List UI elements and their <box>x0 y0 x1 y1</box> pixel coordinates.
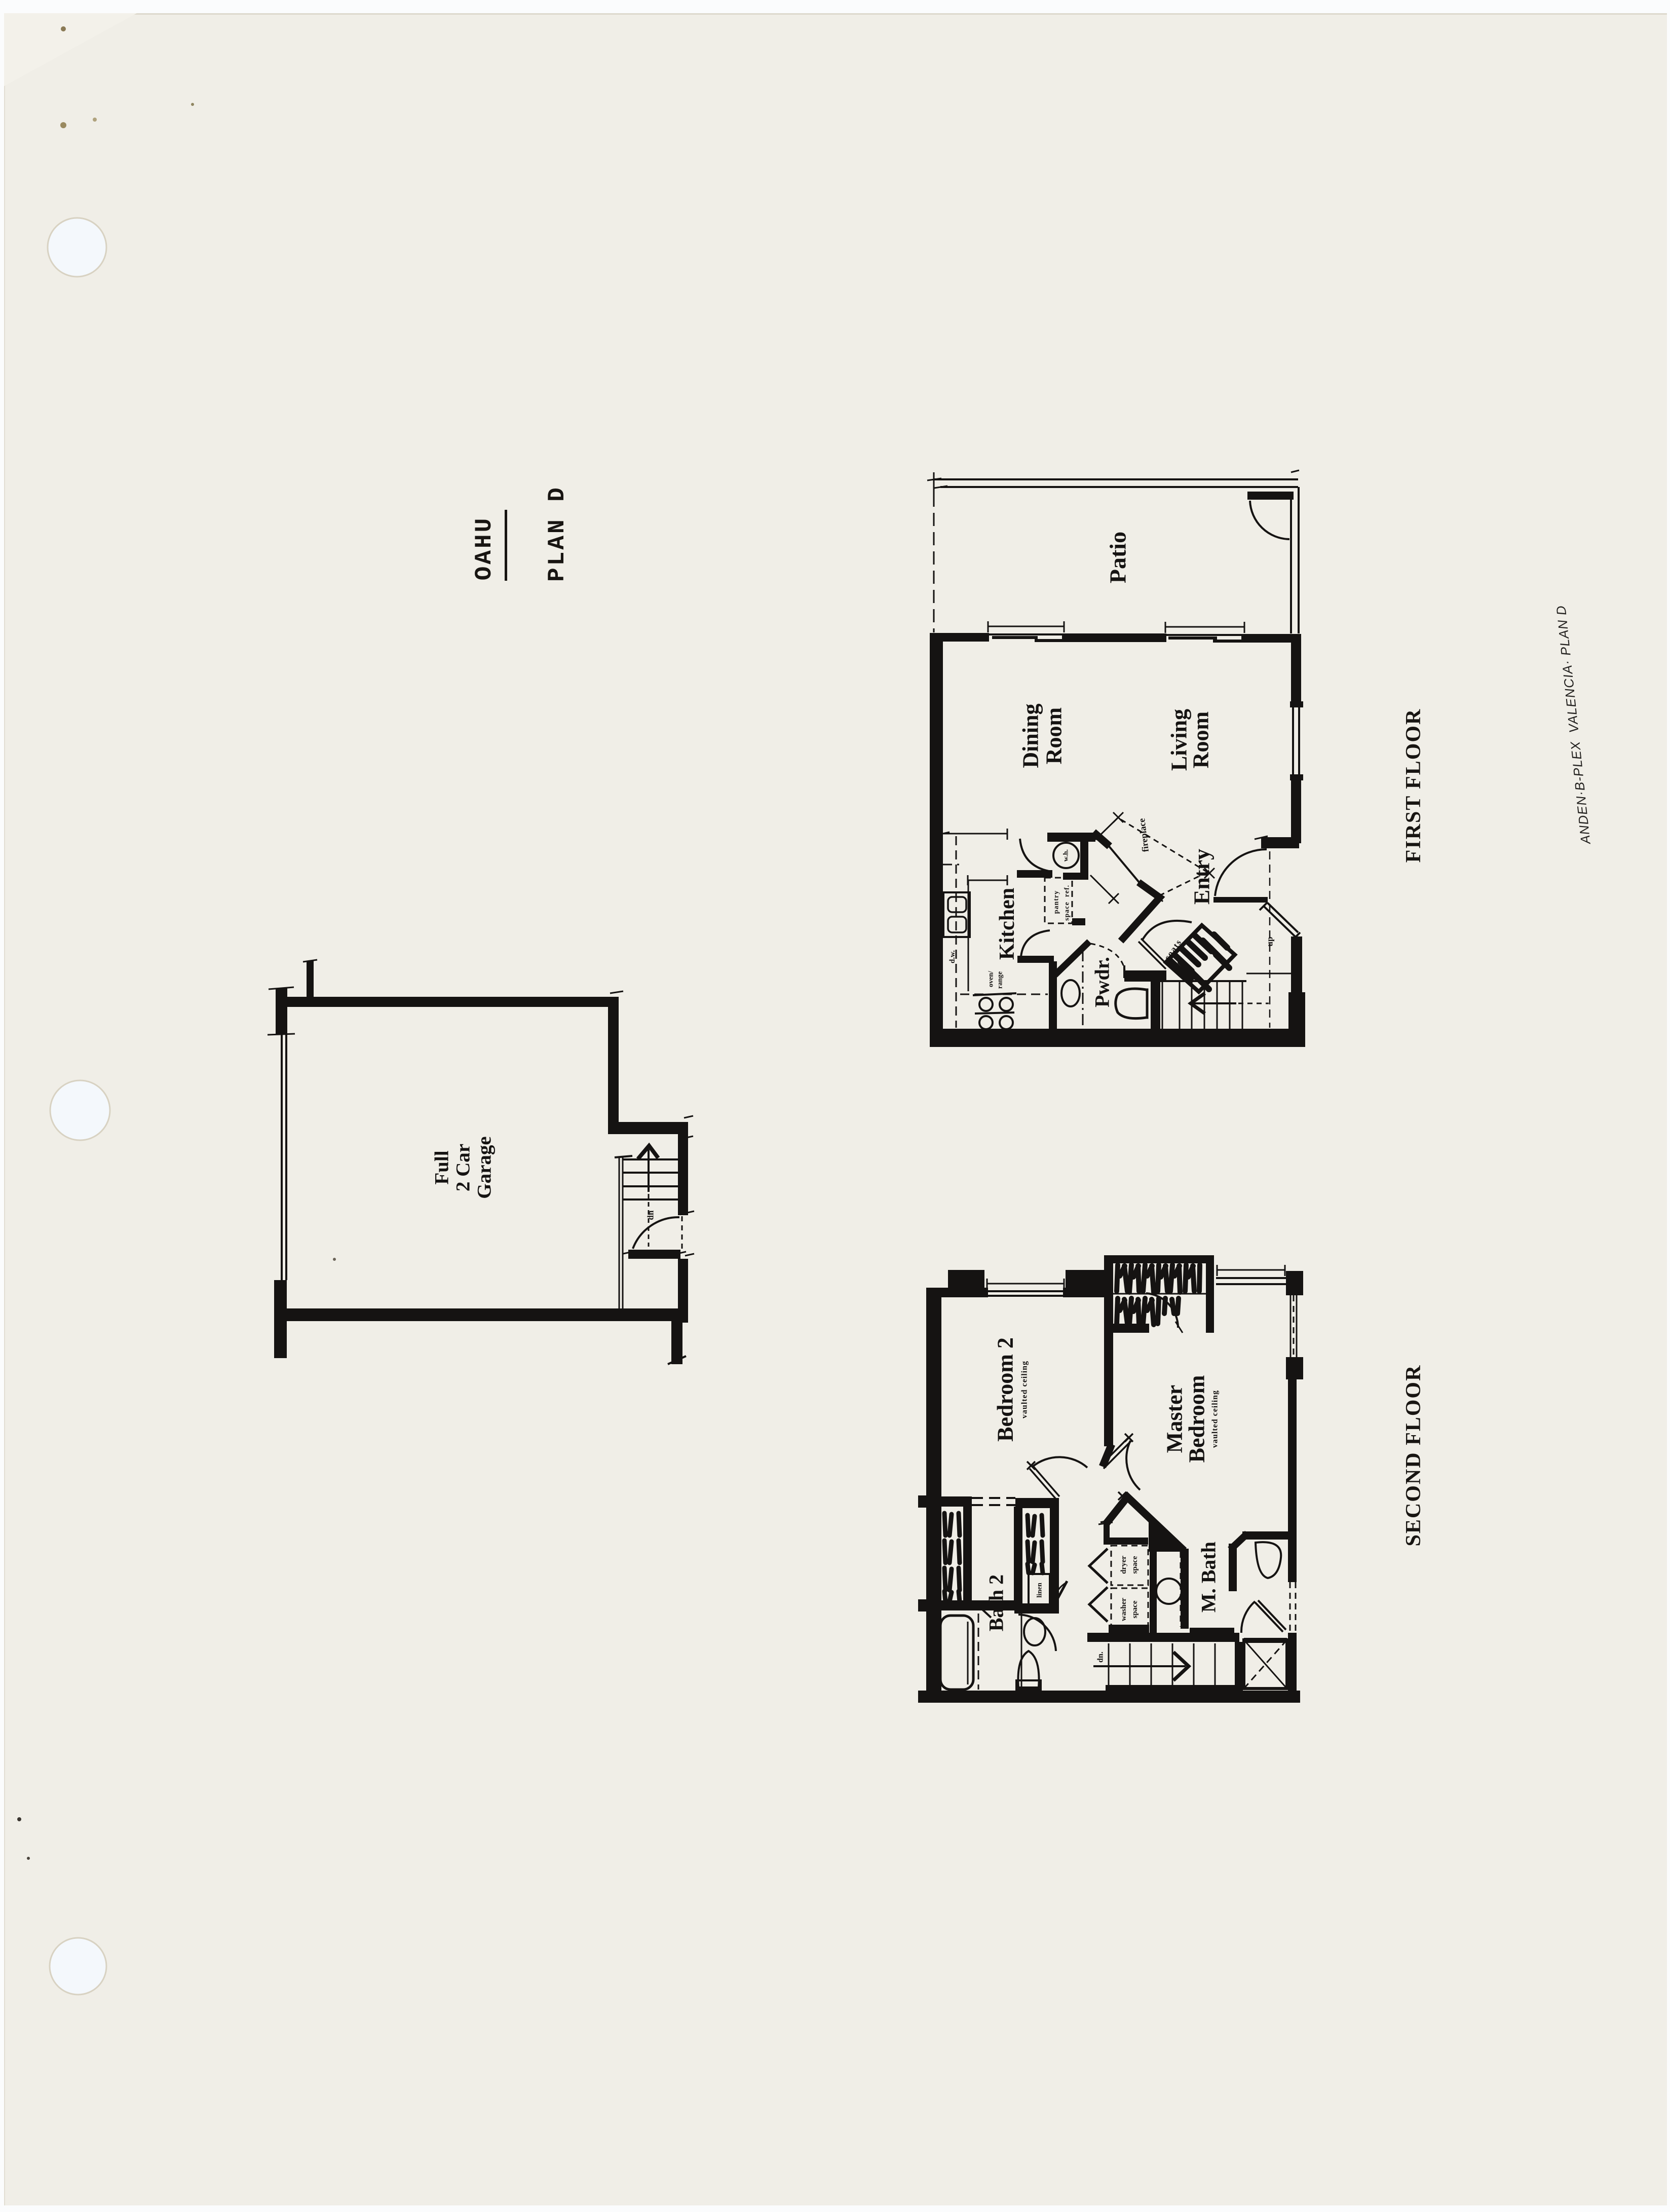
svg-text:Garage: Garage <box>474 1136 496 1198</box>
svg-text:space: space <box>1064 902 1071 921</box>
svg-text:Bedroom 2: Bedroom 2 <box>993 1337 1018 1442</box>
svg-text:PLAN D: PLAN D <box>544 485 571 582</box>
svg-text:oven/: oven/ <box>988 970 995 987</box>
svg-text:linen: linen <box>1036 1583 1044 1598</box>
svg-text:Full: Full <box>431 1150 453 1184</box>
svg-text:dn.: dn. <box>1096 1652 1105 1663</box>
svg-text:Room: Room <box>1042 707 1067 764</box>
svg-text:Pwdr.: Pwdr. <box>1091 957 1114 1007</box>
svg-text:2 Car: 2 Car <box>452 1144 474 1191</box>
svg-text:range: range <box>997 971 1004 989</box>
svg-text:OAHU: OAHU <box>471 516 498 580</box>
svg-text:space: space <box>1131 1600 1139 1618</box>
svg-text:M. Bath: M. Bath <box>1197 1542 1220 1613</box>
svg-text:vaulted ceiling: vaulted ceiling <box>1020 1361 1029 1418</box>
svg-text:dryer: dryer <box>1120 1556 1128 1574</box>
svg-text:Room: Room <box>1189 711 1213 768</box>
svg-text:Bedroom: Bedroom <box>1185 1375 1209 1463</box>
svg-text:d.w.: d.w. <box>948 950 957 963</box>
svg-text:vaulted ceiling: vaulted ceiling <box>1211 1390 1220 1448</box>
svg-text:pantry: pantry <box>1053 890 1060 914</box>
svg-text:Bath 2: Bath 2 <box>985 1574 1008 1631</box>
svg-text:FIRST FLOOR: FIRST FLOOR <box>1402 708 1425 863</box>
svg-text:Kitchen: Kitchen <box>996 888 1019 960</box>
svg-text:washer: washer <box>1120 1598 1128 1621</box>
svg-text:Entry: Entry <box>1190 849 1214 905</box>
svg-text:space: space <box>1131 1556 1139 1573</box>
svg-text:Master: Master <box>1162 1385 1187 1453</box>
svg-text:Patio: Patio <box>1105 532 1131 583</box>
svg-text:up: up <box>1265 937 1275 947</box>
svg-text:w.h.: w.h. <box>1062 849 1070 861</box>
svg-text:dn: dn <box>646 1210 656 1220</box>
svg-text:ref.: ref. <box>1064 885 1071 897</box>
svg-text:Living: Living <box>1167 709 1192 771</box>
svg-text:SECOND FLOOR: SECOND FLOOR <box>1402 1365 1425 1547</box>
svg-text:Dining: Dining <box>1018 703 1043 768</box>
